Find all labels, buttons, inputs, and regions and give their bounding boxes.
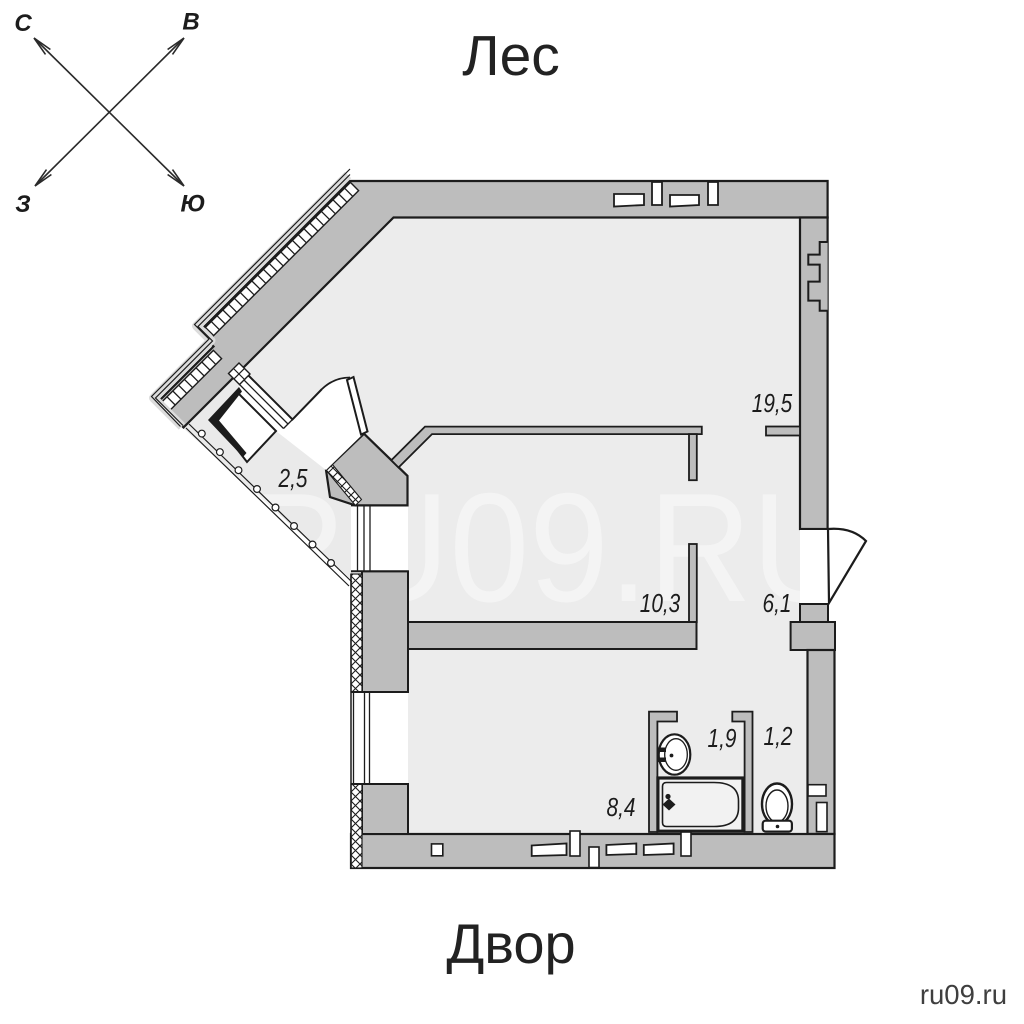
svg-text:19,5: 19,5 [752,389,793,418]
svg-text:10,3: 10,3 [640,589,680,618]
svg-text:8,4: 8,4 [607,793,636,822]
svg-text:2,5: 2,5 [278,464,309,493]
svg-text:С: С [14,10,32,37]
svg-text:З: З [15,191,30,218]
svg-text:1,9: 1,9 [708,724,737,753]
svg-text:В: В [182,9,199,36]
svg-text:Лес: Лес [462,24,560,88]
svg-text:Ю: Ю [180,191,205,218]
svg-text:ru09.ru: ru09.ru [920,979,1007,1010]
svg-text:Двор: Двор [446,912,575,975]
svg-text:1,2: 1,2 [764,722,793,751]
svg-text:6,1: 6,1 [763,589,792,618]
